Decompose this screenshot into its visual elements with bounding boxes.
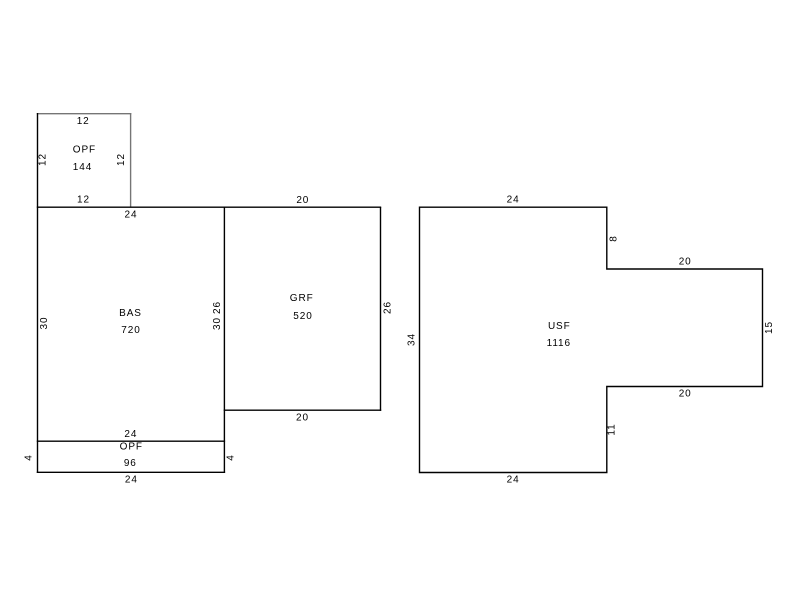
- svg-text:GRF: GRF: [290, 293, 314, 304]
- svg-text:520: 520: [293, 311, 312, 322]
- svg-text:144: 144: [73, 162, 92, 173]
- svg-text:4: 4: [24, 454, 35, 460]
- svg-text:26: 26: [382, 301, 393, 314]
- svg-text:24: 24: [507, 194, 520, 205]
- svg-text:OPF: OPF: [120, 442, 143, 453]
- svg-text:30: 30: [212, 317, 223, 330]
- svg-text:34: 34: [407, 333, 418, 346]
- svg-text:BAS: BAS: [119, 308, 142, 319]
- svg-text:20: 20: [296, 412, 309, 423]
- svg-text:4: 4: [226, 454, 237, 460]
- svg-text:12: 12: [77, 195, 90, 206]
- svg-text:24: 24: [507, 474, 520, 485]
- svg-text:30: 30: [39, 317, 50, 330]
- svg-text:20: 20: [296, 195, 309, 206]
- svg-text:12: 12: [38, 153, 49, 166]
- svg-text:1116: 1116: [547, 338, 571, 349]
- svg-text:24: 24: [125, 475, 138, 486]
- svg-text:12: 12: [116, 153, 127, 166]
- svg-text:24: 24: [125, 210, 138, 221]
- svg-text:26: 26: [212, 301, 223, 314]
- svg-text:15: 15: [764, 321, 775, 334]
- svg-text:12: 12: [77, 116, 90, 127]
- svg-text:20: 20: [679, 257, 692, 268]
- svg-text:11: 11: [607, 423, 618, 435]
- svg-text:96: 96: [124, 458, 137, 469]
- svg-text:8: 8: [608, 235, 619, 241]
- svg-text:720: 720: [121, 325, 140, 336]
- svg-text:USF: USF: [548, 321, 571, 332]
- svg-text:24: 24: [124, 429, 137, 440]
- svg-text:OPF: OPF: [73, 145, 96, 156]
- svg-text:20: 20: [679, 388, 692, 399]
